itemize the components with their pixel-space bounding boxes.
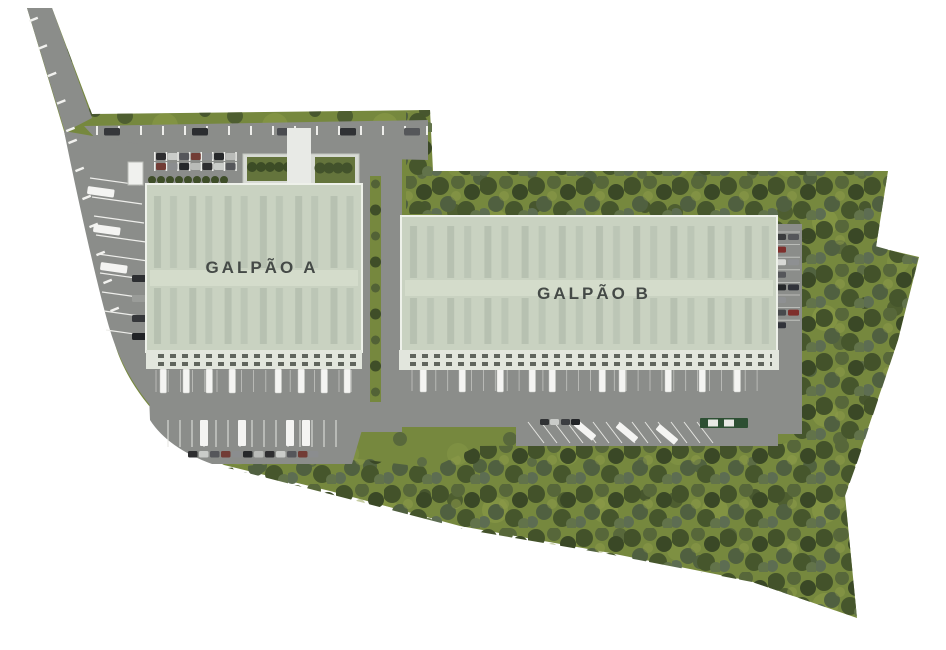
car: [561, 419, 570, 425]
truck-at-dock: [275, 369, 282, 393]
car: [788, 259, 799, 265]
stall-tick: [426, 126, 428, 135]
truck-at-dock: [497, 369, 504, 392]
warehouse-a-bays-lower: [152, 288, 356, 344]
car: [214, 153, 224, 160]
car: [202, 163, 212, 170]
car: [265, 451, 275, 458]
car: [202, 153, 212, 160]
car: [168, 153, 178, 160]
stall-tick: [360, 126, 362, 135]
car: [540, 419, 549, 425]
warehouse-a-walkway: [287, 128, 311, 188]
car: [404, 128, 420, 136]
truck-green: [700, 418, 748, 428]
car: [788, 234, 799, 240]
car: [179, 163, 189, 170]
truck-at-dock: [160, 369, 167, 393]
warehouse-a-dock-doors: [152, 354, 356, 366]
car: [192, 128, 208, 136]
car: [788, 284, 799, 290]
bush: [265, 162, 275, 172]
car: [571, 419, 580, 425]
truck-at-dock: [344, 369, 351, 393]
car: [243, 451, 253, 458]
car: [179, 153, 189, 160]
bush: [342, 163, 353, 174]
stall-tick: [250, 126, 252, 135]
car: [340, 128, 356, 136]
truck-at-dock: [229, 369, 236, 393]
car: [191, 163, 201, 170]
gatehouse: [128, 162, 143, 185]
car: [156, 163, 166, 170]
truck-trailer: [200, 420, 208, 446]
car: [226, 153, 236, 160]
car: [221, 451, 231, 458]
bush: [157, 176, 165, 184]
tree: [371, 388, 380, 397]
truck-at-dock: [549, 369, 556, 392]
stall-tick: [154, 162, 156, 171]
truck-container: [724, 420, 734, 427]
tree: [370, 257, 381, 268]
truck-at-dock: [183, 369, 190, 393]
truck-at-dock: [459, 369, 466, 392]
car: [104, 128, 120, 136]
stall-tick: [154, 152, 156, 161]
truck-at-dock: [321, 369, 328, 393]
car: [191, 153, 201, 160]
bush: [166, 176, 174, 184]
warehouse-b-dock-doors: [406, 354, 772, 366]
warehouse-a-label: GALPÃO A: [205, 257, 318, 277]
stall-tick: [338, 126, 340, 135]
car: [276, 451, 286, 458]
car: [132, 333, 146, 340]
tree: [371, 232, 380, 241]
tree: [371, 180, 380, 189]
car: [132, 315, 146, 322]
truck-at-dock: [734, 369, 741, 392]
car: [132, 275, 146, 282]
stall-tick: [184, 126, 186, 135]
truck-at-dock: [599, 369, 606, 392]
stall-tick: [162, 126, 164, 135]
site-plan-rendering: GALPÃO A GALPÃO B: [0, 0, 946, 650]
tree: [370, 205, 381, 216]
car: [550, 419, 559, 425]
hedge-row: [148, 176, 228, 184]
truck-at-dock: [298, 369, 305, 393]
truck-at-dock: [420, 369, 427, 392]
bush: [220, 176, 228, 184]
tree: [371, 336, 380, 345]
stall-tick: [228, 126, 230, 135]
car: [254, 451, 264, 458]
bush: [184, 176, 192, 184]
tree: [371, 284, 380, 293]
stall-tick: [140, 126, 142, 135]
truck-at-dock: [206, 369, 213, 393]
car: [788, 310, 799, 316]
bush: [148, 176, 156, 184]
car: [232, 451, 242, 458]
median-trees: [370, 180, 381, 397]
stall-tick: [272, 126, 274, 135]
bush: [193, 176, 201, 184]
car: [210, 451, 220, 458]
warehouse-b: GALPÃO B: [399, 216, 779, 370]
truck-trailer: [302, 420, 310, 446]
truck-at-dock: [665, 369, 672, 392]
car: [298, 451, 308, 458]
tree: [370, 309, 381, 320]
warehouse-b-bays-lower: [407, 298, 771, 344]
corridor-median: [370, 176, 381, 402]
stall-tick: [382, 126, 384, 135]
bush: [175, 176, 183, 184]
bush: [274, 162, 284, 172]
stall-tick: [96, 126, 98, 135]
truck-at-dock: [529, 369, 536, 392]
truck-trailer: [286, 420, 294, 446]
entrance-road: [27, 8, 92, 132]
warehouse-b-label: GALPÃO B: [537, 283, 651, 303]
bush: [202, 176, 210, 184]
car: [214, 163, 224, 170]
truck-container: [708, 420, 718, 427]
car: [156, 153, 166, 160]
truck-at-dock: [699, 369, 706, 392]
warehouse-b-bays-upper: [407, 226, 771, 278]
tree: [370, 361, 381, 372]
car: [132, 295, 146, 302]
bush: [211, 176, 219, 184]
truck-trailer: [238, 420, 246, 446]
car: [168, 163, 178, 170]
car: [188, 451, 198, 458]
car: [226, 163, 236, 170]
car: [309, 451, 319, 458]
bush: [247, 162, 257, 172]
stall-tick: [316, 126, 318, 135]
bush: [256, 162, 266, 172]
car: [287, 451, 297, 458]
truck-at-dock: [619, 369, 626, 392]
car: [199, 451, 209, 458]
